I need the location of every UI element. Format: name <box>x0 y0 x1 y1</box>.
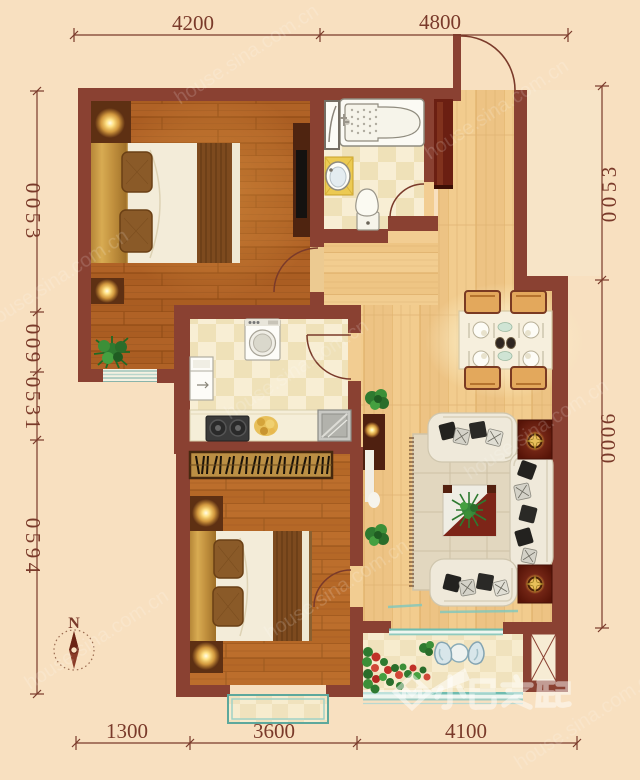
svg-text:5: 5 <box>21 391 45 402</box>
svg-text:0: 0 <box>21 198 45 209</box>
svg-text:0: 0 <box>596 440 620 451</box>
svg-text:5: 5 <box>597 182 621 193</box>
svg-text:9: 9 <box>21 352 45 363</box>
svg-text:4800: 4800 <box>419 10 461 34</box>
svg-text:1: 1 <box>21 419 45 430</box>
svg-text:0: 0 <box>596 453 620 464</box>
svg-text:0: 0 <box>21 518 45 529</box>
svg-text:6: 6 <box>596 414 620 425</box>
svg-text:0: 0 <box>597 197 621 208</box>
svg-text:0: 0 <box>21 183 45 194</box>
svg-text:0: 0 <box>597 212 621 223</box>
svg-text:N: N <box>68 615 80 632</box>
svg-text:0: 0 <box>596 427 620 438</box>
svg-text:3: 3 <box>21 405 45 416</box>
svg-text:3600: 3600 <box>253 719 295 743</box>
svg-text:0: 0 <box>21 338 45 349</box>
svg-text:0: 0 <box>21 377 45 388</box>
svg-text:1300: 1300 <box>106 719 148 743</box>
svg-text:4: 4 <box>21 563 45 574</box>
svg-text:4200: 4200 <box>172 11 214 35</box>
svg-text:3: 3 <box>597 167 621 178</box>
svg-text:4100: 4100 <box>445 719 487 743</box>
svg-text:5: 5 <box>21 213 45 224</box>
svg-text:0: 0 <box>21 324 45 335</box>
svg-text:3: 3 <box>21 228 45 239</box>
svg-text:5: 5 <box>21 533 45 544</box>
svg-text:9: 9 <box>21 548 45 559</box>
